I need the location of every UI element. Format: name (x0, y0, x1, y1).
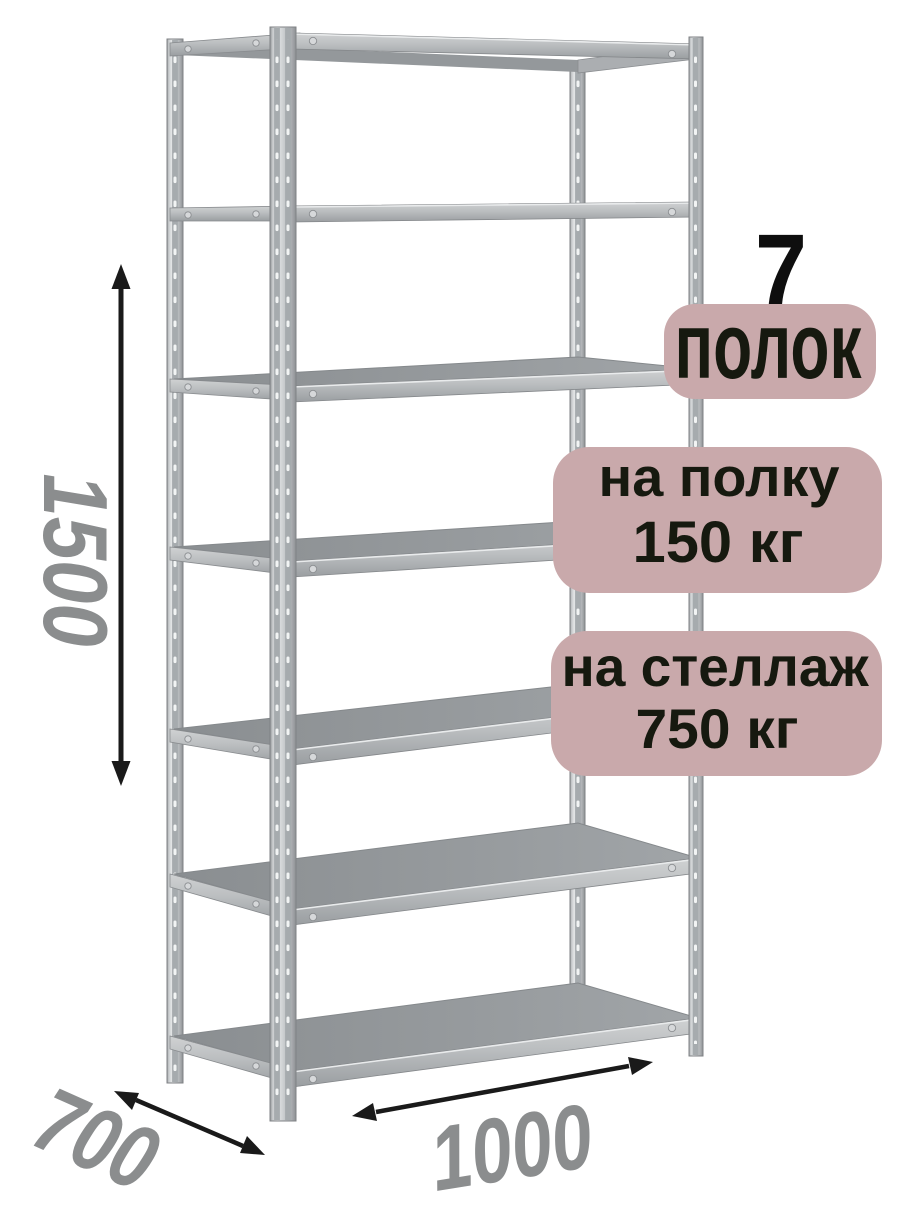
svg-text:на стеллаж: на стеллаж (562, 635, 870, 698)
svg-text:на полку: на полку (599, 446, 840, 508)
svg-text:полок: полок (675, 293, 863, 398)
svg-text:750 кг: 750 кг (636, 697, 799, 760)
svg-text:150 кг: 150 кг (633, 510, 804, 575)
svg-text:1500: 1500 (24, 474, 125, 647)
